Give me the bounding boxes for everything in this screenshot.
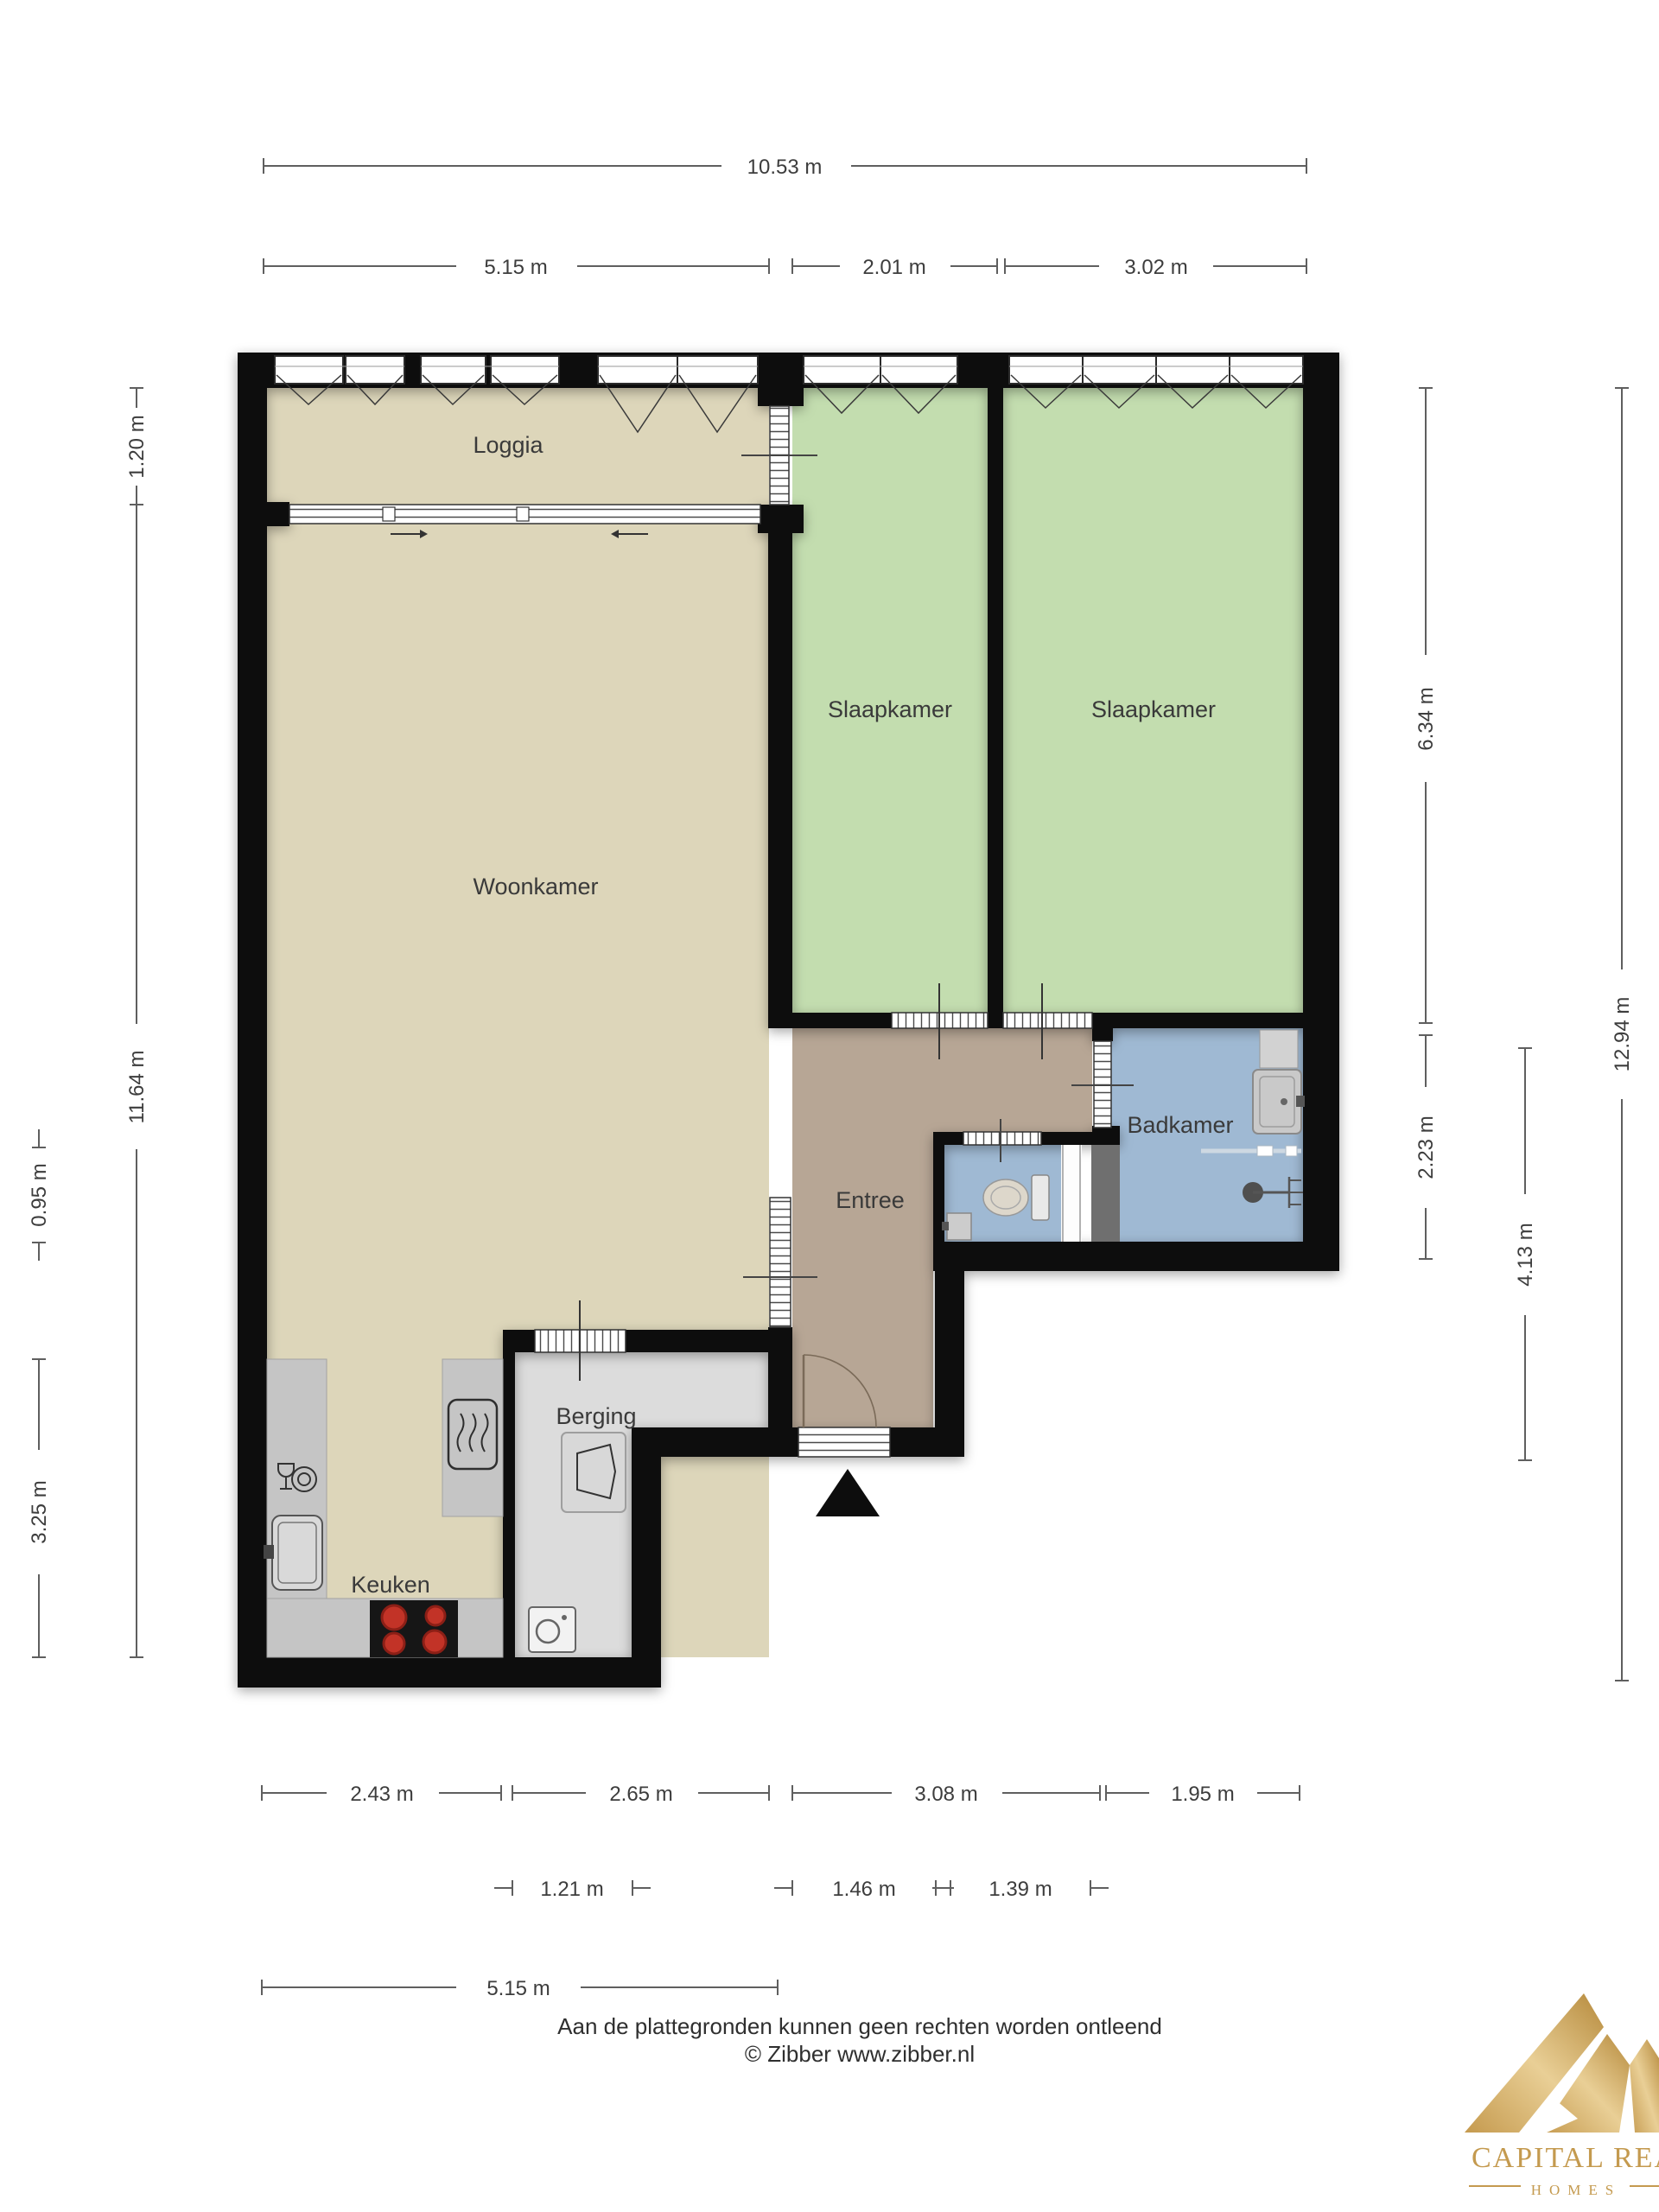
svg-text:10.53 m: 10.53 m bbox=[747, 156, 823, 179]
kitchen-counter-block bbox=[442, 1359, 503, 1516]
room-label-keuken: Keuken bbox=[351, 1572, 430, 1598]
footer: Aan de plattegronden kunnen geen rechten… bbox=[557, 2013, 1162, 2067]
dimensions-top: 10.53 m 5.15 m 2.01 m 3.02 m bbox=[264, 156, 1306, 279]
bathroom-cabinet-icon bbox=[1260, 1030, 1298, 1068]
toilet-door-icon bbox=[1061, 1145, 1082, 1242]
svg-text:5.15 m: 5.15 m bbox=[486, 1977, 550, 2000]
floorplan-canvas: Loggia Woonkamer Slaapkamer Slaapkamer B… bbox=[0, 0, 1659, 2212]
dimension-bottom-toilet: 1.39 m bbox=[932, 1878, 1109, 1901]
kitchen-sink-icon bbox=[264, 1516, 322, 1590]
stove-icon bbox=[370, 1600, 458, 1657]
room-label-woonkamer: Woonkamer bbox=[473, 874, 598, 899]
dimension-bottom-entree-zone: 3.08 m bbox=[792, 1783, 1100, 1806]
logo-title: CAPITAL REALTIN bbox=[1471, 2142, 1659, 2174]
dimension-right-bedrooms: 6.34 m bbox=[1414, 388, 1438, 1023]
dimension-bottom-kitchen: 2.43 m bbox=[262, 1783, 501, 1806]
svg-text:12.94 m: 12.94 m bbox=[1611, 997, 1634, 1072]
svg-text:6.34 m: 6.34 m bbox=[1414, 687, 1438, 750]
washing-machine-icon bbox=[529, 1607, 575, 1652]
faucet-icon bbox=[264, 1545, 274, 1559]
washbasin-icon bbox=[1253, 1070, 1305, 1134]
svg-text:2.43 m: 2.43 m bbox=[350, 1783, 413, 1806]
shaft bbox=[1091, 1145, 1120, 1242]
dimension-top-mid: 2.01 m bbox=[792, 256, 997, 279]
realtor-logo: CAPITAL REALTIN HOMES bbox=[1465, 1993, 1659, 2198]
svg-text:5.15 m: 5.15 m bbox=[484, 256, 547, 279]
dimension-top-right: 3.02 m bbox=[1005, 256, 1306, 279]
dimension-right-total: 12.94 m bbox=[1611, 388, 1634, 1681]
room-label-slaapkamer2: Slaapkamer bbox=[1091, 696, 1216, 722]
dimension-left-outer-kitchen: 3.25 m bbox=[28, 1359, 51, 1657]
room-label-slaapkamer1: Slaapkamer bbox=[828, 696, 952, 722]
footer-disclaimer: Aan de plattegronden kunnen geen rechten… bbox=[557, 2013, 1162, 2039]
room-label-badkamer: Badkamer bbox=[1127, 1112, 1233, 1138]
dimension-right-badkamer: 2.23 m bbox=[1414, 1035, 1438, 1259]
dimension-bottom-total-left: 5.15 m bbox=[262, 1977, 778, 2000]
svg-text:1.39 m: 1.39 m bbox=[988, 1878, 1052, 1901]
room-label-entree: Entree bbox=[836, 1187, 905, 1213]
entrance-marker-icon bbox=[816, 1469, 880, 1516]
svg-text:2.01 m: 2.01 m bbox=[862, 256, 925, 279]
svg-text:1.46 m: 1.46 m bbox=[832, 1878, 895, 1901]
svg-text:1.95 m: 1.95 m bbox=[1171, 1783, 1234, 1806]
dimension-left-main: 11.64 m bbox=[125, 505, 149, 1657]
svg-text:1.21 m: 1.21 m bbox=[540, 1878, 603, 1901]
dimensions-right: 6.34 m 2.23 m 4.13 m 12.94 m bbox=[1414, 388, 1634, 1681]
dimensions-bottom: 2.43 m 2.65 m 3.08 m 1.95 m 1.21 m 1.46 … bbox=[262, 1783, 1300, 2000]
footer-copyright: © Zibber www.zibber.nl bbox=[745, 2041, 975, 2067]
dimension-bottom-berging-zone: 2.65 m bbox=[512, 1783, 769, 1806]
svg-text:1.20 m: 1.20 m bbox=[125, 415, 149, 478]
svg-text:4.13 m: 4.13 m bbox=[1514, 1223, 1537, 1286]
svg-text:3.08 m: 3.08 m bbox=[914, 1783, 977, 1806]
cabinet-icon bbox=[562, 1433, 626, 1512]
dimension-left-loggia: 1.20 m bbox=[125, 388, 149, 505]
toilet-icon bbox=[983, 1175, 1049, 1220]
svg-text:3.25 m: 3.25 m bbox=[28, 1480, 51, 1543]
dimension-bottom-badkamer: 1.95 m bbox=[1106, 1783, 1300, 1806]
dimension-top-total: 10.53 m bbox=[264, 156, 1306, 179]
room-label-berging: Berging bbox=[556, 1403, 636, 1429]
dimension-left-outer-small: 0.95 m bbox=[28, 1129, 51, 1261]
floorplan-page: Loggia Woonkamer Slaapkamer Slaapkamer B… bbox=[0, 0, 1659, 2212]
svg-text:3.02 m: 3.02 m bbox=[1124, 256, 1187, 279]
dimensions-left: 1.20 m 11.64 m 0.95 m 3.25 m bbox=[28, 388, 149, 1657]
dimension-bottom-frontdoor: 1.46 m bbox=[774, 1878, 954, 1901]
dimension-top-left: 5.15 m bbox=[264, 256, 769, 279]
dimension-right-entree: 4.13 m bbox=[1514, 1048, 1537, 1460]
mountain-logo-icon bbox=[1465, 1993, 1659, 2133]
logo-subtitle: HOMES bbox=[1531, 2182, 1622, 2198]
room-label-loggia: Loggia bbox=[473, 432, 543, 458]
svg-text:2.65 m: 2.65 m bbox=[609, 1783, 672, 1806]
svg-text:0.95 m: 0.95 m bbox=[28, 1163, 51, 1226]
svg-text:11.64 m: 11.64 m bbox=[125, 1051, 149, 1124]
dimension-bottom-berging: 1.21 m bbox=[494, 1878, 651, 1901]
svg-text:2.23 m: 2.23 m bbox=[1414, 1116, 1438, 1179]
